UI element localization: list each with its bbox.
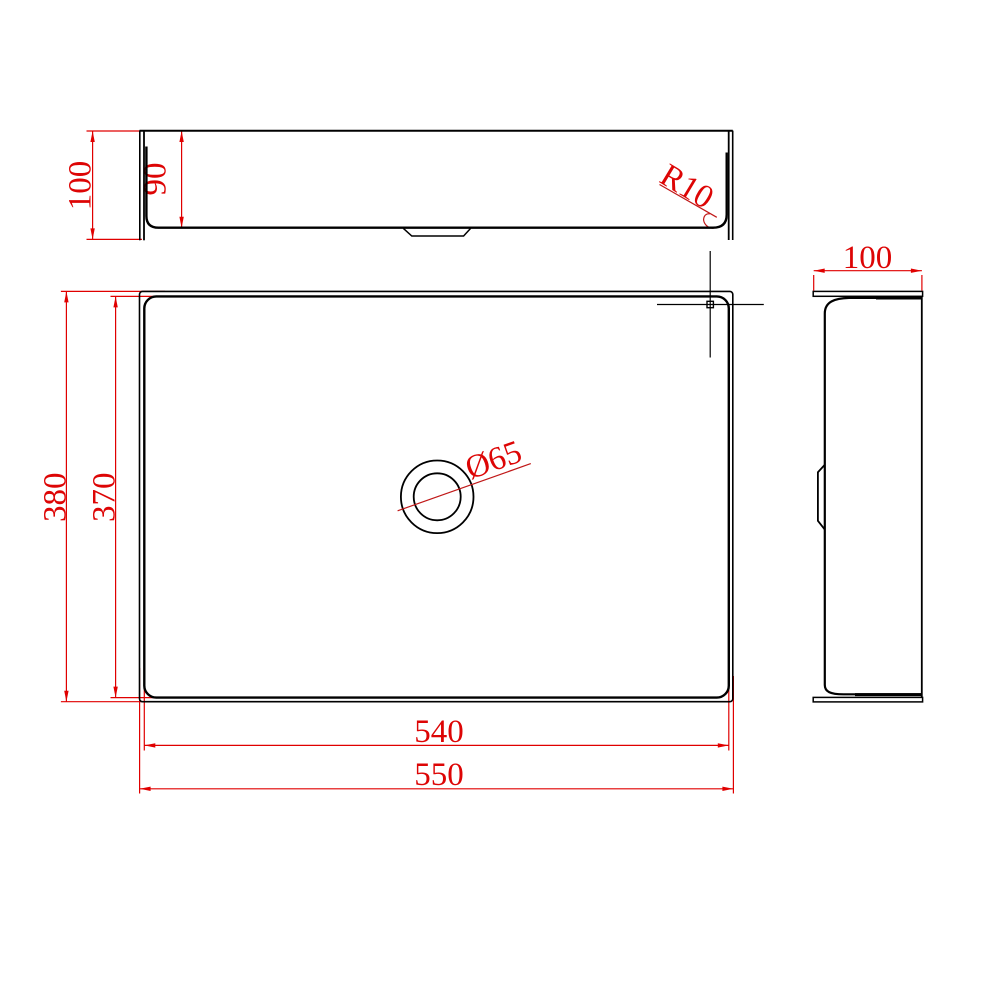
svg-text:Ø65: Ø65 (461, 434, 527, 487)
svg-text:100: 100 (63, 161, 99, 211)
svg-text:550: 550 (414, 757, 464, 793)
svg-text:90: 90 (138, 163, 174, 196)
svg-text:380: 380 (38, 472, 74, 522)
svg-text:540: 540 (414, 714, 464, 750)
svg-text:370: 370 (86, 472, 122, 522)
svg-text:100: 100 (843, 240, 893, 276)
svg-text:R10: R10 (654, 157, 720, 216)
